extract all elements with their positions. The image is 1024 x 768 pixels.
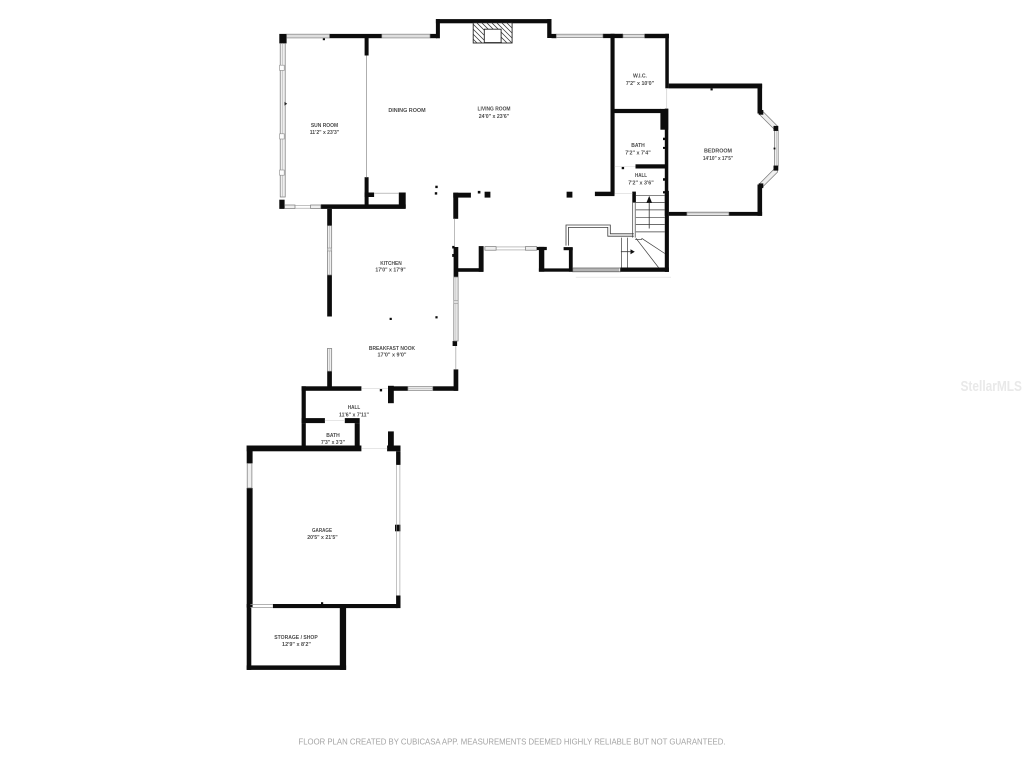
svg-text:7'2" x 10'0": 7'2" x 10'0" xyxy=(626,81,655,87)
svg-text:DINING ROOM: DINING ROOM xyxy=(388,108,425,114)
svg-text:BEDROOM: BEDROOM xyxy=(704,149,732,155)
svg-text:HALL: HALL xyxy=(635,173,647,179)
svg-text:BATH: BATH xyxy=(326,433,340,439)
svg-text:17'0" x 9'0": 17'0" x 9'0" xyxy=(378,353,407,359)
svg-text:W.I.C.: W.I.C. xyxy=(633,74,647,80)
svg-text:StellarMLS: StellarMLS xyxy=(961,378,1023,395)
svg-text:BATH: BATH xyxy=(631,143,645,149)
svg-text:BREAKFAST NOOK: BREAKFAST NOOK xyxy=(369,346,416,352)
svg-text:20'5" x 21'5": 20'5" x 21'5" xyxy=(307,535,338,541)
svg-text:24'0" x 23'6": 24'0" x 23'6" xyxy=(479,114,510,120)
svg-text:STORAGE / SHOP: STORAGE / SHOP xyxy=(274,635,317,641)
svg-text:7'3" x 3'3": 7'3" x 3'3" xyxy=(321,440,345,446)
svg-text:11'6" x 7'11": 11'6" x 7'11" xyxy=(339,412,369,418)
svg-text:LIVING ROOM: LIVING ROOM xyxy=(477,107,510,113)
svg-text:KITCHEN: KITCHEN xyxy=(380,261,402,267)
svg-text:11'2" x 23'3": 11'2" x 23'3" xyxy=(310,130,340,136)
svg-text:GARAGE: GARAGE xyxy=(312,528,332,534)
svg-text:HALL: HALL xyxy=(348,405,361,411)
svg-text:SUN ROOM: SUN ROOM xyxy=(311,123,338,129)
svg-text:17'0" x 17'9": 17'0" x 17'9" xyxy=(375,268,406,274)
svg-text:14'10" x 17'5": 14'10" x 17'5" xyxy=(703,156,734,162)
svg-text:FLOOR PLAN CREATED BY CUBICASA: FLOOR PLAN CREATED BY CUBICASA APP. MEAS… xyxy=(299,737,726,747)
svg-text:7'2" x 7'4": 7'2" x 7'4" xyxy=(625,151,651,157)
svg-text:12'9" x 8'2": 12'9" x 8'2" xyxy=(282,642,311,648)
svg-text:7'2" x 3'6": 7'2" x 3'6" xyxy=(628,181,654,187)
